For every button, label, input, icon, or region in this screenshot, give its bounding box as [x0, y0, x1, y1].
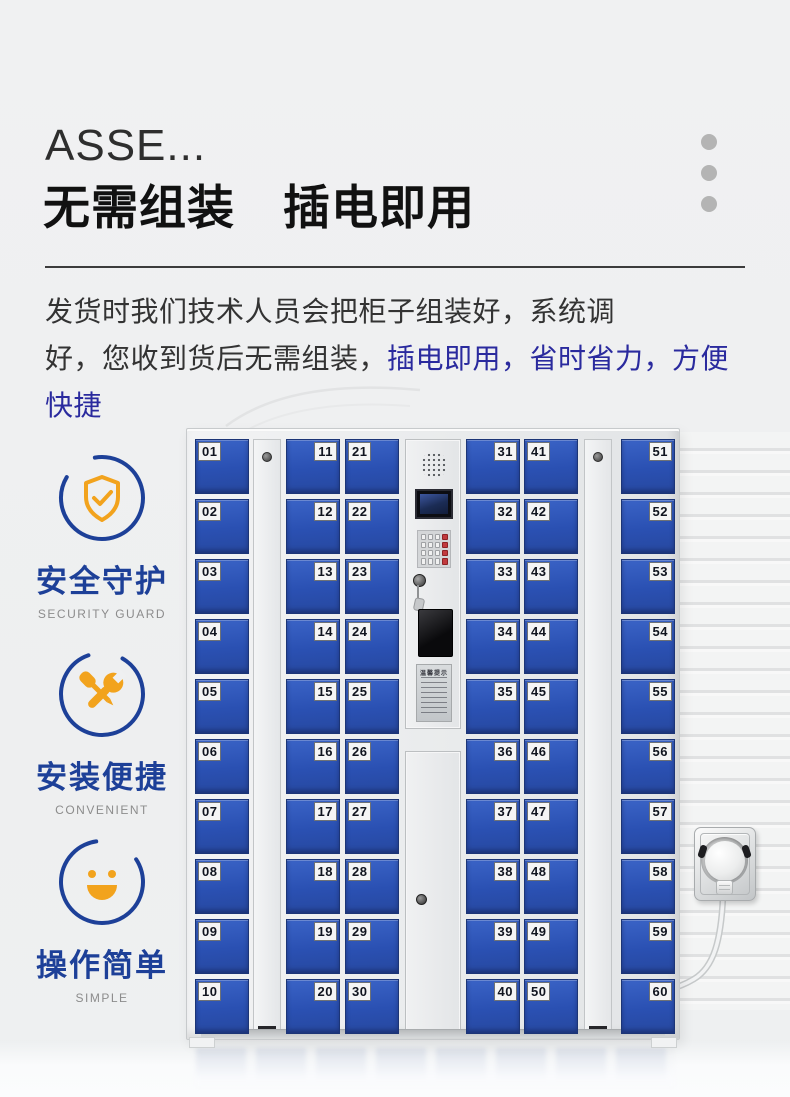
door-number-plate: 58 — [649, 862, 672, 881]
locker-door: 33 — [466, 559, 520, 614]
feature-subtitle: SECURITY GUARD — [18, 607, 186, 621]
locker-door: 18 — [286, 859, 340, 914]
main-heading: 无需组装 插电即用 — [43, 182, 475, 234]
door-number-plate: 38 — [494, 862, 517, 881]
door-number-plate: 11 — [314, 442, 337, 461]
notice-title: 温馨提示 — [417, 668, 451, 677]
notice-label: 温馨提示 — [416, 664, 452, 722]
locker-door: 39 — [466, 919, 520, 974]
door-number-plate: 16 — [314, 742, 337, 761]
locker-door: 25 — [345, 679, 399, 734]
decor-dot — [701, 165, 717, 181]
door-number-plate: 14 — [314, 622, 337, 641]
keypad-key — [421, 542, 427, 549]
feature-item-simple: 操作简单 SIMPLE — [18, 836, 186, 1005]
locker-door: 28 — [345, 859, 399, 914]
keypad-key — [428, 534, 434, 541]
locker-door: 14 — [286, 619, 340, 674]
door-number-plate: 48 — [527, 862, 550, 881]
locker-door: 27 — [345, 799, 399, 854]
keypad-key — [442, 550, 448, 557]
keypad-key — [435, 542, 441, 549]
door-number-plate: 45 — [527, 682, 550, 701]
door-number-plate: 27 — [348, 802, 371, 821]
door-number-plate: 07 — [198, 802, 221, 821]
locker-door: 11 — [286, 439, 340, 494]
locker-door: 49 — [524, 919, 578, 974]
door-number-plate: 34 — [494, 622, 517, 641]
locker-door: 41 — [524, 439, 578, 494]
door-number-plate: 51 — [649, 442, 672, 461]
door-number-plate: 40 — [494, 982, 517, 1001]
strip-lock-icon — [262, 452, 272, 462]
door-lock-icon — [416, 894, 427, 905]
door-number-plate: 52 — [649, 502, 672, 521]
keypad-key — [435, 534, 441, 541]
door-number-plate: 59 — [649, 922, 672, 941]
cabinet-foot — [651, 1037, 677, 1048]
keypad-key — [428, 558, 434, 565]
locker-door: 59 — [621, 919, 675, 974]
door-number-plate: 31 — [494, 442, 517, 461]
locker-door: 44 — [524, 619, 578, 674]
door-number-plate: 43 — [527, 562, 550, 581]
locker-door: 34 — [466, 619, 520, 674]
promo-page: ASSE... 无需组装 插电即用 发货时我们技术人员会把柜子组装好，系统调 好… — [0, 0, 790, 1097]
locker-door: 20 — [286, 979, 340, 1034]
door-number-plate: 47 — [527, 802, 550, 821]
door-number-plate: 25 — [348, 682, 371, 701]
door-number-plate: 12 — [314, 502, 337, 521]
door-number-plate: 02 — [198, 502, 221, 521]
notice-text-lines — [421, 677, 447, 717]
door-number-plate: 50 — [527, 982, 550, 1001]
door-number-plate: 42 — [527, 502, 550, 521]
locker-door: 45 — [524, 679, 578, 734]
locker-door: 37 — [466, 799, 520, 854]
center-door — [405, 751, 461, 1034]
keypad-key — [435, 550, 441, 557]
locker-cabinet: 温馨提示 01020304050607080910111213141516171… — [186, 428, 680, 1040]
locker-door: 60 — [621, 979, 675, 1034]
feature-subtitle: SIMPLE — [18, 991, 186, 1005]
feature-title: 操作简单 — [18, 940, 186, 985]
door-number-plate: 41 — [527, 442, 550, 461]
locker-door: 10 — [195, 979, 249, 1034]
feature-item-install: 安装便捷 CONVENIENT — [18, 648, 186, 817]
base-bar — [201, 1029, 665, 1038]
keypad-key — [442, 534, 448, 541]
locker-door: 46 — [524, 739, 578, 794]
feature-title: 安装便捷 — [18, 752, 186, 797]
locker-door: 50 — [524, 979, 578, 1034]
door-number-plate: 20 — [314, 982, 337, 1001]
locker-door: 32 — [466, 499, 520, 554]
door-number-plate: 15 — [314, 682, 337, 701]
locker-door: 43 — [524, 559, 578, 614]
door-number-plate: 55 — [649, 682, 672, 701]
decor-dot — [701, 134, 717, 150]
door-number-plate: 28 — [348, 862, 371, 881]
panel-lock-icon — [413, 574, 426, 587]
door-number-plate: 08 — [198, 862, 221, 881]
locker-door: 19 — [286, 919, 340, 974]
door-number-plate: 23 — [348, 562, 371, 581]
door-number-plate: 18 — [314, 862, 337, 881]
keypad-key — [421, 550, 427, 557]
locker-side-strip — [253, 439, 281, 1034]
door-number-plate: 19 — [314, 922, 337, 941]
door-number-plate: 09 — [198, 922, 221, 941]
locker-door: 38 — [466, 859, 520, 914]
locker-door: 05 — [195, 679, 249, 734]
locker-door: 07 — [195, 799, 249, 854]
power-plug — [705, 841, 745, 881]
door-number-plate: 03 — [198, 562, 221, 581]
locker-door: 51 — [621, 439, 675, 494]
door-number-plate: 54 — [649, 622, 672, 641]
locker-door: 42 — [524, 499, 578, 554]
socket-recess — [701, 837, 748, 884]
locker-door: 24 — [345, 619, 399, 674]
keypad-key — [435, 558, 441, 565]
locker-door: 12 — [286, 499, 340, 554]
door-number-plate: 37 — [494, 802, 517, 821]
locker-door: 36 — [466, 739, 520, 794]
smiley-icon — [56, 836, 148, 928]
locker-door: 01 — [195, 439, 249, 494]
door-number-plate: 36 — [494, 742, 517, 761]
locker-door: 57 — [621, 799, 675, 854]
power-socket — [694, 827, 756, 901]
keypad-key — [421, 558, 427, 565]
locker-door: 15 — [286, 679, 340, 734]
keypad-key — [442, 542, 448, 549]
scanner-window — [418, 609, 453, 657]
door-number-plate: 21 — [348, 442, 371, 461]
locker-door: 30 — [345, 979, 399, 1034]
locker-door: 48 — [524, 859, 578, 914]
door-number-plate: 04 — [198, 622, 221, 641]
locker-door: 47 — [524, 799, 578, 854]
door-number-plate: 22 — [348, 502, 371, 521]
door-number-plate: 44 — [527, 622, 550, 641]
keypad-key — [442, 558, 448, 565]
locker-door: 56 — [621, 739, 675, 794]
locker-door: 31 — [466, 439, 520, 494]
feature-subtitle: CONVENIENT — [18, 803, 186, 817]
door-number-plate: 26 — [348, 742, 371, 761]
door-number-plate: 46 — [527, 742, 550, 761]
locker-door: 40 — [466, 979, 520, 1034]
door-number-plate: 49 — [527, 922, 550, 941]
locker-door: 09 — [195, 919, 249, 974]
locker-door: 02 — [195, 499, 249, 554]
keypad-key — [428, 550, 434, 557]
divider — [45, 266, 745, 268]
speaker-icon — [421, 452, 447, 478]
feature-item-security: 安全守护 SECURITY GUARD — [18, 452, 186, 621]
locker-door: 35 — [466, 679, 520, 734]
door-number-plate: 35 — [494, 682, 517, 701]
locker-door: 08 — [195, 859, 249, 914]
keypad-key — [428, 542, 434, 549]
decor-dots — [701, 134, 717, 227]
door-number-plate: 01 — [198, 442, 221, 461]
door-number-plate: 06 — [198, 742, 221, 761]
locker-door: 17 — [286, 799, 340, 854]
locker-door: 04 — [195, 619, 249, 674]
intro-line-1: 发货时我们技术人员会把柜子组装好，系统调 — [45, 296, 615, 327]
door-number-plate: 53 — [649, 562, 672, 581]
door-number-plate: 57 — [649, 802, 672, 821]
door-number-plate: 33 — [494, 562, 517, 581]
keypad-key — [421, 534, 427, 541]
locker-door: 03 — [195, 559, 249, 614]
door-number-plate: 30 — [348, 982, 371, 1001]
locker-door: 06 — [195, 739, 249, 794]
door-number-plate: 10 — [198, 982, 221, 1001]
locker-door: 58 — [621, 859, 675, 914]
cabinet-foot — [189, 1037, 215, 1048]
locker-door: 29 — [345, 919, 399, 974]
locker-door: 53 — [621, 559, 675, 614]
door-number-plate: 13 — [314, 562, 337, 581]
locker-door: 55 — [621, 679, 675, 734]
door-number-plate: 39 — [494, 922, 517, 941]
locker-door: 52 — [621, 499, 675, 554]
door-number-plate: 29 — [348, 922, 371, 941]
door-number-plate: 32 — [494, 502, 517, 521]
cabinet-reflection — [196, 1048, 674, 1086]
door-number-plate: 17 — [314, 802, 337, 821]
control-column: 温馨提示 — [405, 439, 461, 1034]
wall-panel-stripes — [680, 432, 790, 1010]
locker-door: 13 — [286, 559, 340, 614]
locker-door: 54 — [621, 619, 675, 674]
locker-door: 16 — [286, 739, 340, 794]
locker-door: 22 — [345, 499, 399, 554]
locker-door: 23 — [345, 559, 399, 614]
door-number-plate: 24 — [348, 622, 371, 641]
feature-title: 安全守护 — [18, 556, 186, 601]
locker-door: 21 — [345, 439, 399, 494]
page-title: ASSE... — [45, 124, 206, 168]
control-screen — [415, 489, 453, 519]
locker-side-strip — [584, 439, 612, 1034]
control-panel: 温馨提示 — [405, 439, 461, 729]
locker-door: 26 — [345, 739, 399, 794]
keypad — [417, 530, 451, 568]
screen-display — [420, 494, 448, 514]
decor-dot — [701, 196, 717, 212]
strip-lock-icon — [593, 452, 603, 462]
shield-check-icon — [56, 452, 148, 544]
tools-icon — [56, 648, 148, 740]
door-number-plate: 05 — [198, 682, 221, 701]
door-number-plate: 60 — [649, 982, 672, 1001]
door-number-plate: 56 — [649, 742, 672, 761]
plug-neck — [716, 880, 733, 895]
